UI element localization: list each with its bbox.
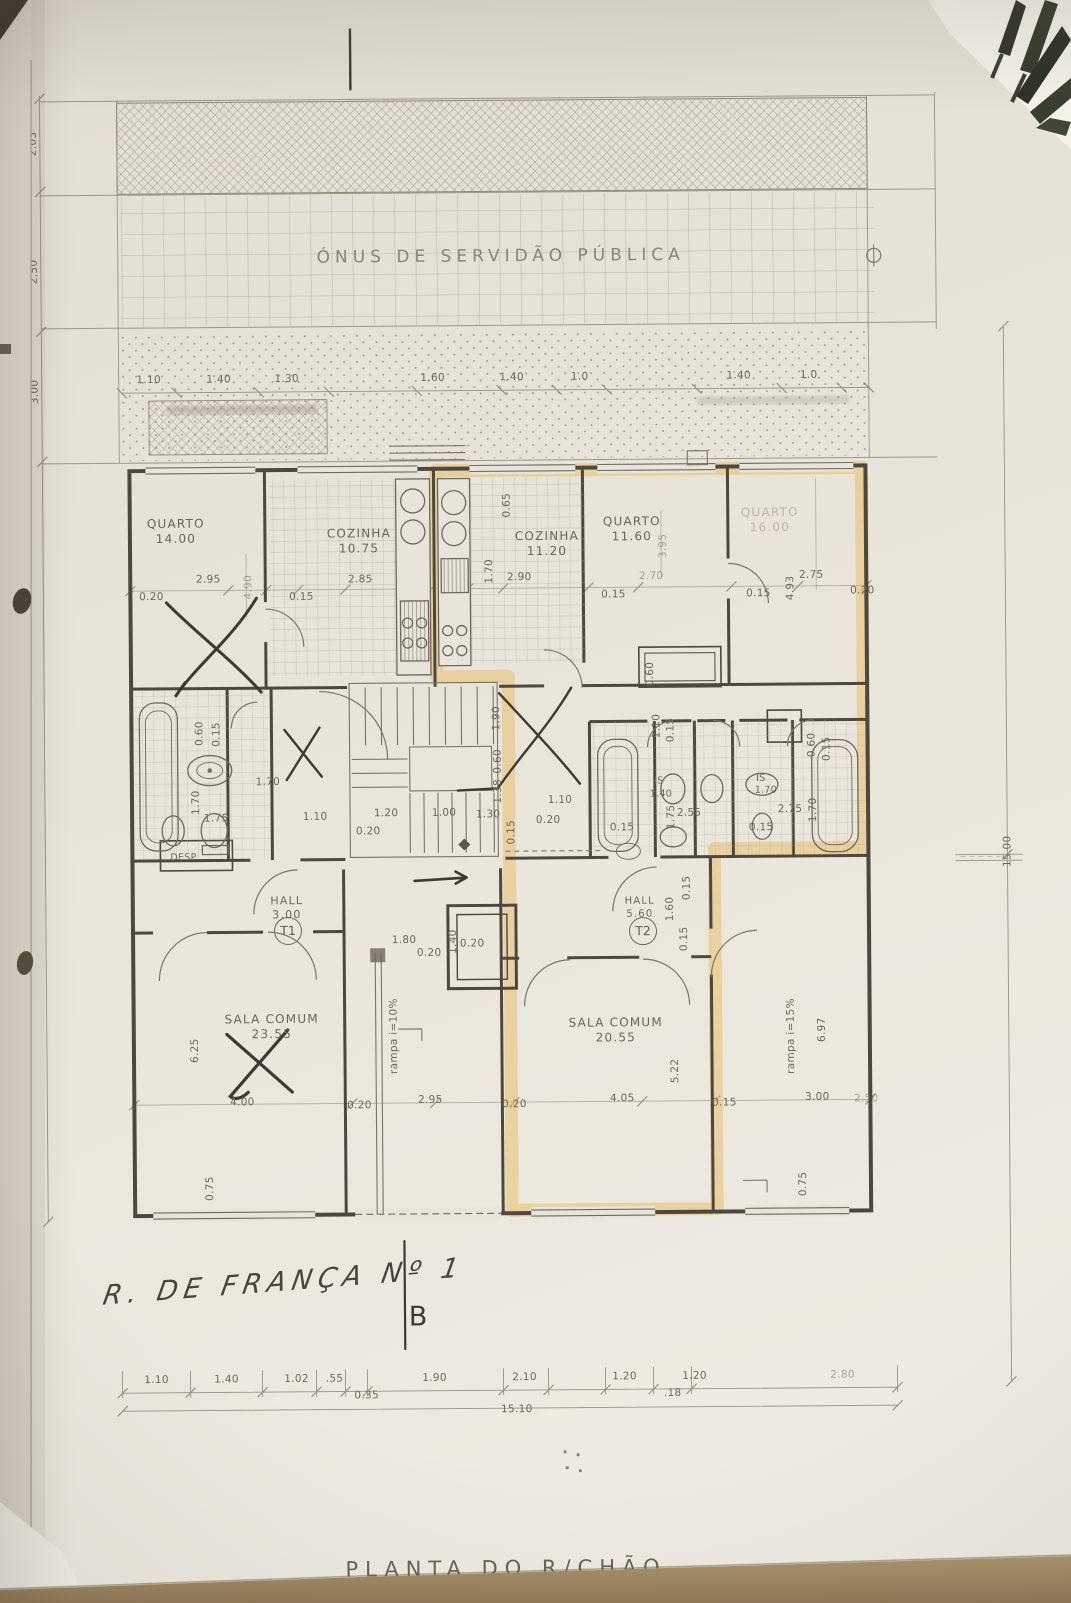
- dim-label: 0.15: [210, 722, 222, 747]
- room-label-sala1: SALA COMUM 23.55: [224, 1012, 319, 1043]
- dim-label: 2.50: [28, 260, 40, 285]
- dim-label: 0.75: [204, 1176, 216, 1201]
- dim-label: 1.90: [490, 706, 502, 731]
- room-label-is1: IS: [654, 775, 664, 786]
- room-name: SALA COMUM: [224, 1012, 318, 1028]
- dim-label: 2.75: [799, 569, 824, 581]
- dim-label: 4.00: [230, 1096, 255, 1108]
- dim-label: 5.22: [669, 1059, 681, 1084]
- section-mark-b: B: [409, 1301, 428, 1332]
- dim-label: 15.10: [501, 1403, 533, 1415]
- dim-label: 1.10: [144, 1374, 169, 1386]
- room-area: 11.60: [603, 529, 661, 544]
- dim-label: 1.70: [483, 559, 495, 584]
- dim-label: 0.15: [749, 821, 774, 833]
- site-bands: [39, 92, 937, 464]
- room-name: QUARTO: [741, 505, 799, 520]
- dim-label: 0.15: [610, 821, 635, 833]
- dim-label: 3.95: [657, 534, 669, 559]
- dim-label: 1.30: [274, 373, 299, 385]
- paper-sheet: ÓNUS DE SERVIDÃO PÚBLICA QUARTO 14.00 CO…: [0, 0, 1071, 1603]
- dim-label: 0.60: [193, 721, 205, 746]
- dim-label: 1.02: [284, 1373, 309, 1385]
- dim-label: 0.15: [678, 926, 690, 951]
- dim-label: 1.90: [422, 1372, 447, 1384]
- dim-label: 1.40: [499, 371, 524, 383]
- dim-label: 1.70: [255, 776, 280, 788]
- dim-label: 0.20: [417, 947, 442, 959]
- sheet-title: PLANTA DO R/CHÃO: [345, 1555, 666, 1582]
- room-label-quarto1: QUARTO 14.00: [147, 517, 205, 547]
- dim-label: 2.90: [507, 571, 532, 583]
- ramp-label-10: rampa i=10%: [388, 998, 401, 1074]
- dim-label: 0.35: [354, 1389, 379, 1401]
- dim-label: 0.60: [805, 732, 817, 757]
- dim-label: 1.40: [650, 788, 672, 799]
- dim-label: 1.40: [214, 1373, 239, 1385]
- dim-label: 1.20: [374, 807, 399, 819]
- dim-label: .18: [664, 1387, 682, 1399]
- dim-label: 0.20: [850, 584, 875, 596]
- dim-label: 0.15: [712, 1096, 737, 1108]
- dim-label: 4.90: [242, 575, 254, 600]
- dim-label: 0.15: [664, 718, 676, 743]
- dim-label: 1.70: [755, 785, 777, 796]
- unit-badge-t2: T2: [629, 917, 657, 945]
- dim-label: 1.0: [800, 369, 818, 381]
- room-name: QUARTO: [147, 517, 205, 532]
- dim-label: 0.15: [746, 587, 771, 599]
- dim-label: 1.60: [664, 897, 676, 922]
- dim-label: 3.00: [805, 1091, 830, 1103]
- dim-label: 2.80: [830, 1369, 855, 1381]
- dim-label: 1.10: [303, 811, 328, 823]
- room-label-quarto3: QUARTO 16.00: [741, 505, 799, 535]
- dim-label: 1.70: [807, 797, 819, 822]
- dim-label: 1.38: [492, 779, 504, 804]
- dim-label: 2.10: [512, 1371, 537, 1383]
- room-area: 23.55: [225, 1027, 319, 1043]
- room-label-quarto2: QUARTO 11.60: [603, 514, 661, 544]
- dim-label: 1.00: [432, 807, 457, 819]
- room-label-is2: IS: [756, 773, 766, 784]
- dim-label: 0.60: [644, 662, 656, 687]
- dim-label: 2.55: [677, 807, 702, 819]
- dim-label: 1.75: [204, 812, 229, 824]
- dim-label: 22.03: [5, 638, 17, 670]
- dim-label: 1.0: [571, 371, 589, 383]
- dim-label: 1.40: [206, 373, 231, 385]
- faint-marks: [563, 1450, 581, 1472]
- dim-label: 1.70: [190, 790, 202, 815]
- room-name: SALA COMUM: [569, 1015, 663, 1031]
- room-name: HALL: [625, 896, 655, 909]
- dim-label: 2.75: [778, 803, 803, 815]
- dim-label: 2.85: [348, 573, 373, 585]
- dim-label: 1.75: [665, 805, 677, 830]
- dim-label: 0.20: [356, 825, 381, 837]
- dim-label: 1.10: [650, 714, 662, 739]
- dim-label: 0.15: [820, 736, 832, 761]
- room-name: COZINHA: [515, 529, 579, 545]
- dim-label: 4.93: [784, 576, 796, 601]
- dim-label: 1.10: [136, 374, 161, 386]
- dim-label: 0.60: [492, 749, 504, 774]
- ramp-label-15: rampa i=15%: [785, 998, 798, 1074]
- room-area: 16.00: [741, 520, 799, 535]
- dim-label: 0.65: [501, 493, 513, 518]
- dim-label: 0.20: [347, 1099, 372, 1111]
- floor-plan-drawing: [0, 0, 1071, 1603]
- dim-label: 2.50: [854, 1092, 879, 1104]
- room-name: QUARTO: [603, 514, 661, 529]
- unit-badge-t1: T1: [274, 917, 302, 945]
- dim-label: 0.15: [681, 875, 693, 900]
- room-area: 11.20: [515, 544, 579, 560]
- dim-label: 0.15: [289, 591, 314, 603]
- dim-label: 2.03: [27, 132, 39, 157]
- dim-label: 15.00: [1001, 835, 1013, 867]
- room-name: COZINHA: [327, 526, 391, 542]
- kitchen-fittings: [269, 478, 587, 676]
- dim-label: 2.95: [418, 1094, 443, 1106]
- dim-label: 1.10: [548, 794, 573, 806]
- room-area: 20.55: [569, 1030, 663, 1046]
- dim-label: 1.30: [476, 808, 501, 820]
- dim-label: 0.15: [601, 588, 626, 600]
- dim-label: 1.60: [420, 372, 445, 384]
- room-label-desp: DESP.: [170, 852, 198, 863]
- dim-label: 4.05: [610, 1092, 635, 1104]
- room-area: 14.00: [147, 532, 205, 547]
- dim-label: 1.40: [447, 929, 459, 954]
- dim-label: 0.20: [139, 591, 164, 603]
- photo-of-floor-plan: ÓNUS DE SERVIDÃO PÚBLICA QUARTO 14.00 CO…: [0, 0, 1071, 1603]
- dim-label: 1.40: [726, 369, 751, 381]
- dim-label: 0.20: [536, 814, 561, 826]
- room-area: 10.75: [327, 541, 391, 557]
- dim-label: 1.20: [682, 1370, 707, 1382]
- servidao-band-label: ÓNUS DE SERVIDÃO PÚBLICA: [317, 245, 685, 268]
- dim-label: .55: [326, 1373, 344, 1385]
- dim-label: 0.15: [505, 820, 517, 845]
- dim-label: 6.25: [189, 1038, 201, 1063]
- room-name: HALL: [270, 894, 303, 908]
- dim-label: 1.80: [392, 934, 417, 946]
- room-label-sala2: SALA COMUM 20.55: [569, 1015, 664, 1046]
- dim-label: 0.75: [797, 1172, 809, 1197]
- dim-label: 1.20: [612, 1370, 637, 1382]
- room-label-cozinha1: COZINHA 10.75: [327, 526, 391, 557]
- dim-label: 6.97: [816, 1017, 828, 1042]
- dim-label: 0.20: [460, 937, 485, 949]
- dim-label: 0.20: [502, 1098, 527, 1110]
- dim-label: 2.70: [639, 570, 664, 582]
- dim-label: 2.95: [196, 573, 221, 585]
- dim-label: 3.00: [29, 380, 41, 405]
- room-label-cozinha2: COZINHA 11.20: [515, 529, 579, 560]
